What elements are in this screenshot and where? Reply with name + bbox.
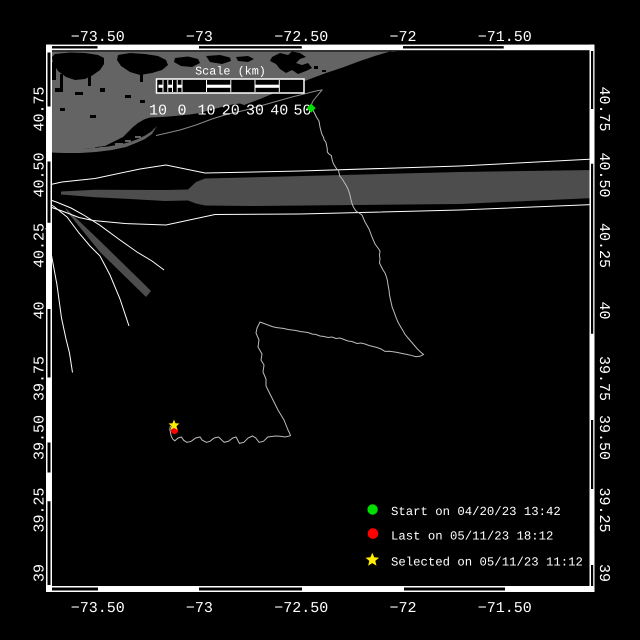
svg-text:40: 40 <box>32 301 49 319</box>
svg-text:39.50: 39.50 <box>595 415 612 460</box>
svg-text:39.25: 39.25 <box>595 487 612 532</box>
svg-text:39.25: 39.25 <box>32 487 49 532</box>
svg-text:−72: −72 <box>389 29 416 46</box>
svg-text:−73.50: −73.50 <box>71 29 125 46</box>
svg-text:−73: −73 <box>186 29 213 46</box>
svg-text:Scale (km): Scale (km) <box>195 65 266 79</box>
svg-text:40.50: 40.50 <box>32 152 49 197</box>
svg-text:39: 39 <box>595 564 612 582</box>
svg-text:−73: −73 <box>186 600 213 617</box>
svg-text:0: 0 <box>177 103 186 120</box>
svg-text:−71.50: −71.50 <box>478 29 532 46</box>
svg-text:Start on 04/20/23 13:42: Start on 04/20/23 13:42 <box>391 505 561 519</box>
svg-text:40: 40 <box>270 103 288 120</box>
svg-text:40: 40 <box>595 301 612 319</box>
svg-text:39.75: 39.75 <box>32 356 49 401</box>
svg-text:−72.50: −72.50 <box>274 29 328 46</box>
svg-text:−72.50: −72.50 <box>274 600 328 617</box>
svg-text:−72: −72 <box>389 600 416 617</box>
svg-text:39: 39 <box>32 564 49 582</box>
svg-text:50: 50 <box>293 103 311 120</box>
svg-text:40.25: 40.25 <box>32 223 49 268</box>
svg-text:−73.50: −73.50 <box>71 600 125 617</box>
svg-text:20: 20 <box>222 103 240 120</box>
svg-text:40.50: 40.50 <box>595 152 612 197</box>
svg-text:40.75: 40.75 <box>32 86 49 131</box>
svg-text:40.25: 40.25 <box>595 223 612 268</box>
svg-text:Selected on 05/11/23 11:12: Selected on 05/11/23 11:12 <box>391 556 583 570</box>
svg-text:39.50: 39.50 <box>32 415 49 460</box>
svg-text:10: 10 <box>197 103 215 120</box>
svg-text:−71.50: −71.50 <box>478 600 532 617</box>
svg-text:40.75: 40.75 <box>595 86 612 131</box>
svg-text:39.75: 39.75 <box>595 356 612 401</box>
svg-text:10: 10 <box>149 103 167 120</box>
svg-text:30: 30 <box>246 103 264 120</box>
svg-text:Last on 05/11/23 18:12: Last on 05/11/23 18:12 <box>391 530 553 544</box>
